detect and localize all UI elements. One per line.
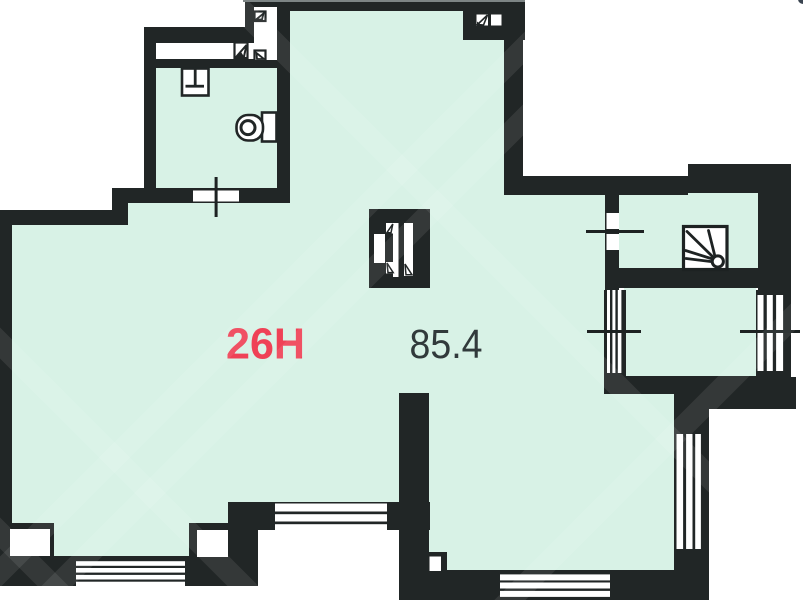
- svg-text:85.4: 85.4: [410, 321, 483, 367]
